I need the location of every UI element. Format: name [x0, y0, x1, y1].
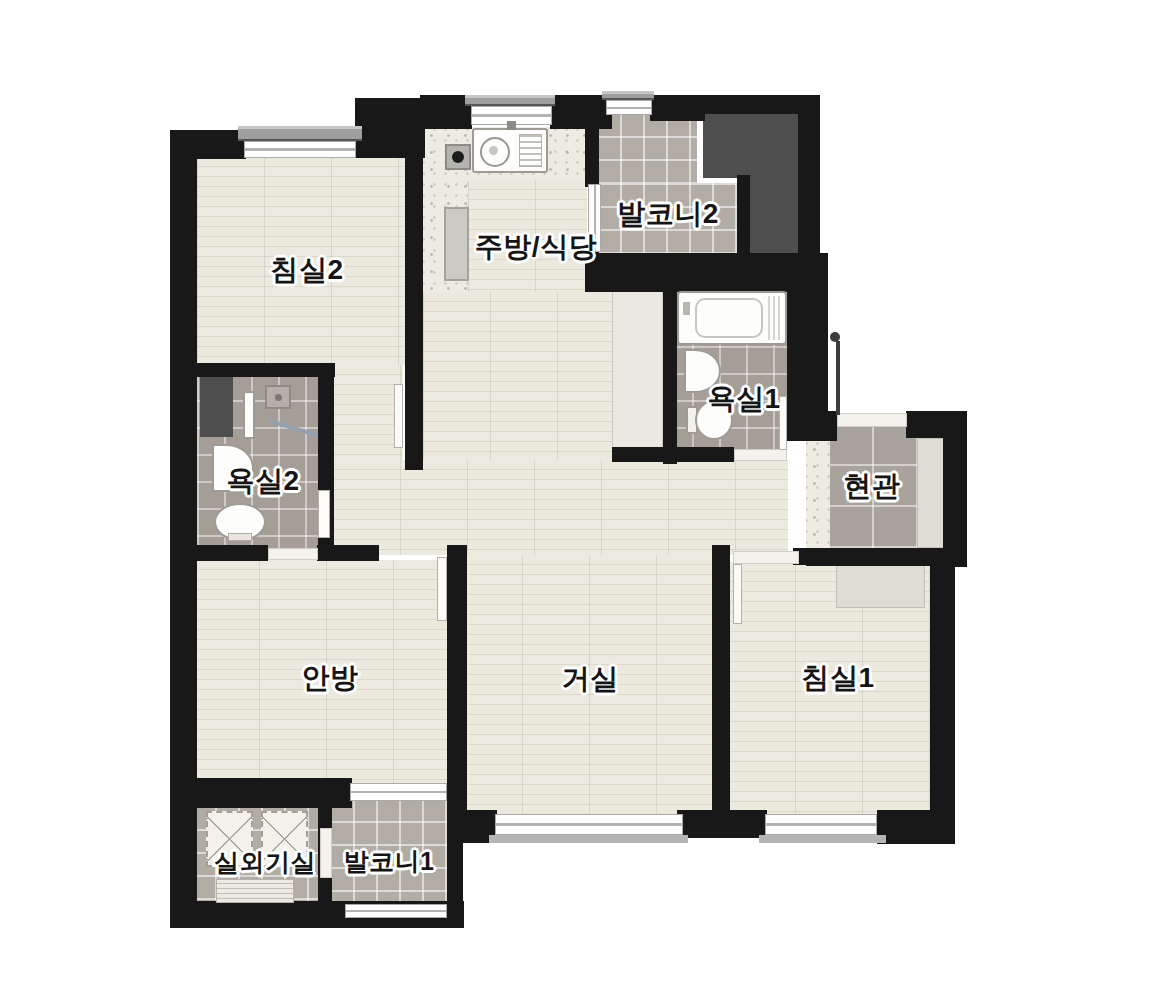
wall	[192, 545, 268, 561]
living-room-window-sill	[489, 835, 688, 843]
front-door-opening	[837, 413, 907, 427]
bedroom1-window	[765, 814, 877, 835]
room-label-entrance: 현관	[844, 472, 901, 500]
wall	[877, 810, 955, 844]
wall	[906, 411, 967, 438]
wall	[550, 95, 612, 129]
wall	[930, 548, 955, 844]
wall	[787, 411, 837, 441]
wall	[192, 363, 335, 377]
faucet-icon	[507, 121, 516, 130]
living-room-window	[495, 814, 683, 835]
room-label-bedroom1: 침실1	[801, 664, 874, 692]
floorplan: 침실2 주방/식당 발코니2 욕실1 현관 욕실2 안방 거실 침실1 실외기실…	[0, 0, 1160, 1000]
bedroom1-door-opening	[733, 551, 799, 564]
front-door-knob	[830, 332, 840, 342]
shower-dot	[275, 394, 282, 401]
shower-head-icon	[265, 385, 291, 409]
core-area-lower	[748, 178, 800, 255]
balcony2-window	[606, 100, 652, 115]
balcony1-window	[345, 904, 447, 918]
wall	[712, 545, 730, 838]
room-label-master-bedroom: 안방	[302, 664, 359, 692]
sink-drain	[489, 146, 498, 155]
floor-balcony2-upper	[597, 113, 697, 185]
bedroom2-window	[244, 141, 356, 158]
room-label-bathroom2: 욕실2	[226, 467, 299, 495]
kitchen-sink-icon	[472, 128, 548, 173]
bedroom2-door-leaf	[394, 384, 403, 448]
floor-bedroom2-entry	[333, 365, 403, 463]
wall	[677, 810, 767, 838]
floor-hall	[333, 460, 788, 555]
bedroom1-window-sill	[759, 835, 886, 843]
wall	[447, 778, 463, 928]
vent-louver-icon	[216, 879, 294, 903]
master-bedroom-door-leaf	[437, 557, 447, 621]
bedroom1-door-leaf	[733, 564, 742, 624]
master-balcony1-slider	[350, 783, 447, 801]
toilet-seat	[228, 533, 252, 541]
kitchen-window-sill	[465, 95, 555, 106]
room-label-balcony1: 발코니1	[344, 849, 435, 874]
room-label-kitchen-dining: 주방/식당	[475, 233, 597, 261]
duct-shaft-left	[200, 372, 233, 437]
room-label-bedroom2: 침실2	[270, 256, 343, 284]
burner	[452, 151, 464, 163]
room-label-balcony2: 발코니2	[617, 200, 719, 228]
bathroom1-cabinet	[612, 282, 663, 449]
tub-faucet	[683, 302, 690, 315]
wall	[317, 545, 379, 561]
bathroom2-door-leaf	[318, 490, 330, 538]
balcony2-window-sill	[602, 91, 654, 100]
cooktop-icon	[445, 144, 471, 170]
wall	[612, 447, 734, 462]
entrance-closet	[917, 438, 944, 548]
refrigerator-icon	[444, 207, 469, 281]
drying-rack	[519, 134, 542, 167]
bedroom1-closet	[836, 563, 925, 608]
front-door-leaf	[836, 341, 840, 415]
wall	[170, 130, 197, 928]
wall	[405, 129, 423, 470]
wall	[585, 113, 599, 187]
room-label-outdoor-unit-room: 실외기실	[214, 850, 316, 875]
bathroom1-door-opening	[734, 449, 787, 461]
toilet-bath2-icon	[214, 502, 268, 544]
core-area	[703, 113, 800, 178]
wall	[737, 175, 750, 255]
tub-basin	[695, 298, 763, 338]
wall	[663, 292, 677, 464]
outdoor-unit-room-door	[320, 828, 332, 878]
wall	[793, 548, 932, 565]
room-label-living-room: 거실	[562, 665, 619, 693]
tub-ledge	[768, 296, 783, 340]
wall	[170, 778, 352, 808]
bathtub-icon	[677, 291, 787, 345]
room-label-bathroom1: 욕실1	[707, 385, 780, 413]
shower-panel	[243, 391, 255, 439]
bathroom2-door-opening	[268, 548, 318, 560]
bedroom2-window-sill	[238, 126, 362, 141]
floor-entrance-strip	[806, 441, 830, 548]
wall	[650, 95, 705, 121]
wall	[170, 130, 246, 159]
